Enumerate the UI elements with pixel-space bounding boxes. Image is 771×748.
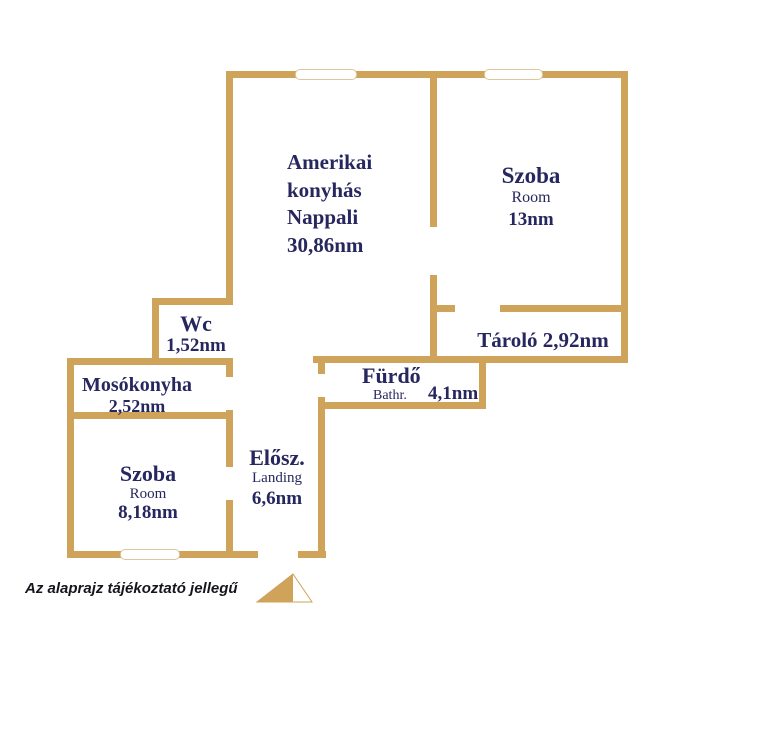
room-label-tarolo: Tároló 2,92nm	[460, 329, 626, 352]
wall-tarolo-top	[500, 305, 628, 312]
room-label-nappali: Amerikai konyhás Nappali 30,86nm	[287, 149, 372, 259]
room-label-elosz: Elősz. Landing 6,6nm	[217, 446, 337, 509]
room-subtitle: Room	[470, 189, 592, 206]
room-label-szoba13: Szoba Room 13nm	[470, 164, 592, 231]
room-name: konyhás	[287, 177, 372, 205]
room-name: Nappali	[287, 204, 372, 232]
room-label-wc: Wc 1,52nm	[150, 312, 242, 356]
floor-plan: Amerikai konyhás Nappali 30,86nm Szoba R…	[0, 0, 771, 748]
room-subtitle: Landing	[217, 470, 337, 486]
room-subtitle: Room	[88, 486, 208, 502]
wall-center-b	[430, 275, 437, 363]
wall-top-outer	[227, 71, 628, 78]
window-szoba8-bottom	[120, 549, 180, 560]
room-name: Amerikai	[287, 149, 372, 177]
wall-center-a	[430, 78, 437, 227]
room-subtitle: Bathr.	[373, 388, 407, 403]
window-nappali-top	[295, 69, 357, 80]
room-name: Fürdő	[362, 364, 421, 388]
wall-right-outer	[621, 71, 628, 363]
room-name: Mosókonyha	[64, 375, 210, 397]
room-area: 13nm	[470, 210, 592, 231]
wall-tarolo-top-stub	[430, 305, 455, 312]
room-name-area: Tároló 2,92nm	[477, 328, 608, 352]
wall-furdo-left-stub	[318, 363, 325, 374]
room-name: Szoba	[88, 462, 208, 486]
room-area: 4,1nm	[428, 384, 478, 405]
room-area: 2,52nm	[64, 397, 210, 416]
room-area: 8,18nm	[88, 503, 208, 524]
room-area: 30,86nm	[287, 232, 372, 260]
room-label-mosokonyha: Mosókonyha 2,52nm	[64, 375, 210, 416]
room-label-furdo: Fürdő Bathr. 4,1nm	[330, 362, 490, 410]
wall-elosz-left-a	[226, 358, 233, 377]
wall-wc-top	[152, 298, 233, 305]
north-arrow-icon	[250, 570, 320, 608]
disclaimer-text: Az alaprajz tájékoztató jellegű	[25, 580, 238, 597]
room-name: Wc	[150, 312, 242, 336]
room-name: Szoba	[470, 164, 592, 189]
window-szoba13-top	[484, 69, 543, 80]
room-area: 1,52nm	[150, 336, 242, 357]
room-name: Elősz.	[217, 446, 337, 470]
room-label-szoba8: Szoba Room 8,18nm	[88, 462, 208, 523]
room-area: 6,6nm	[217, 489, 337, 510]
wall-nappali-left	[226, 71, 233, 305]
wall-mosokonyha-top	[67, 358, 233, 365]
